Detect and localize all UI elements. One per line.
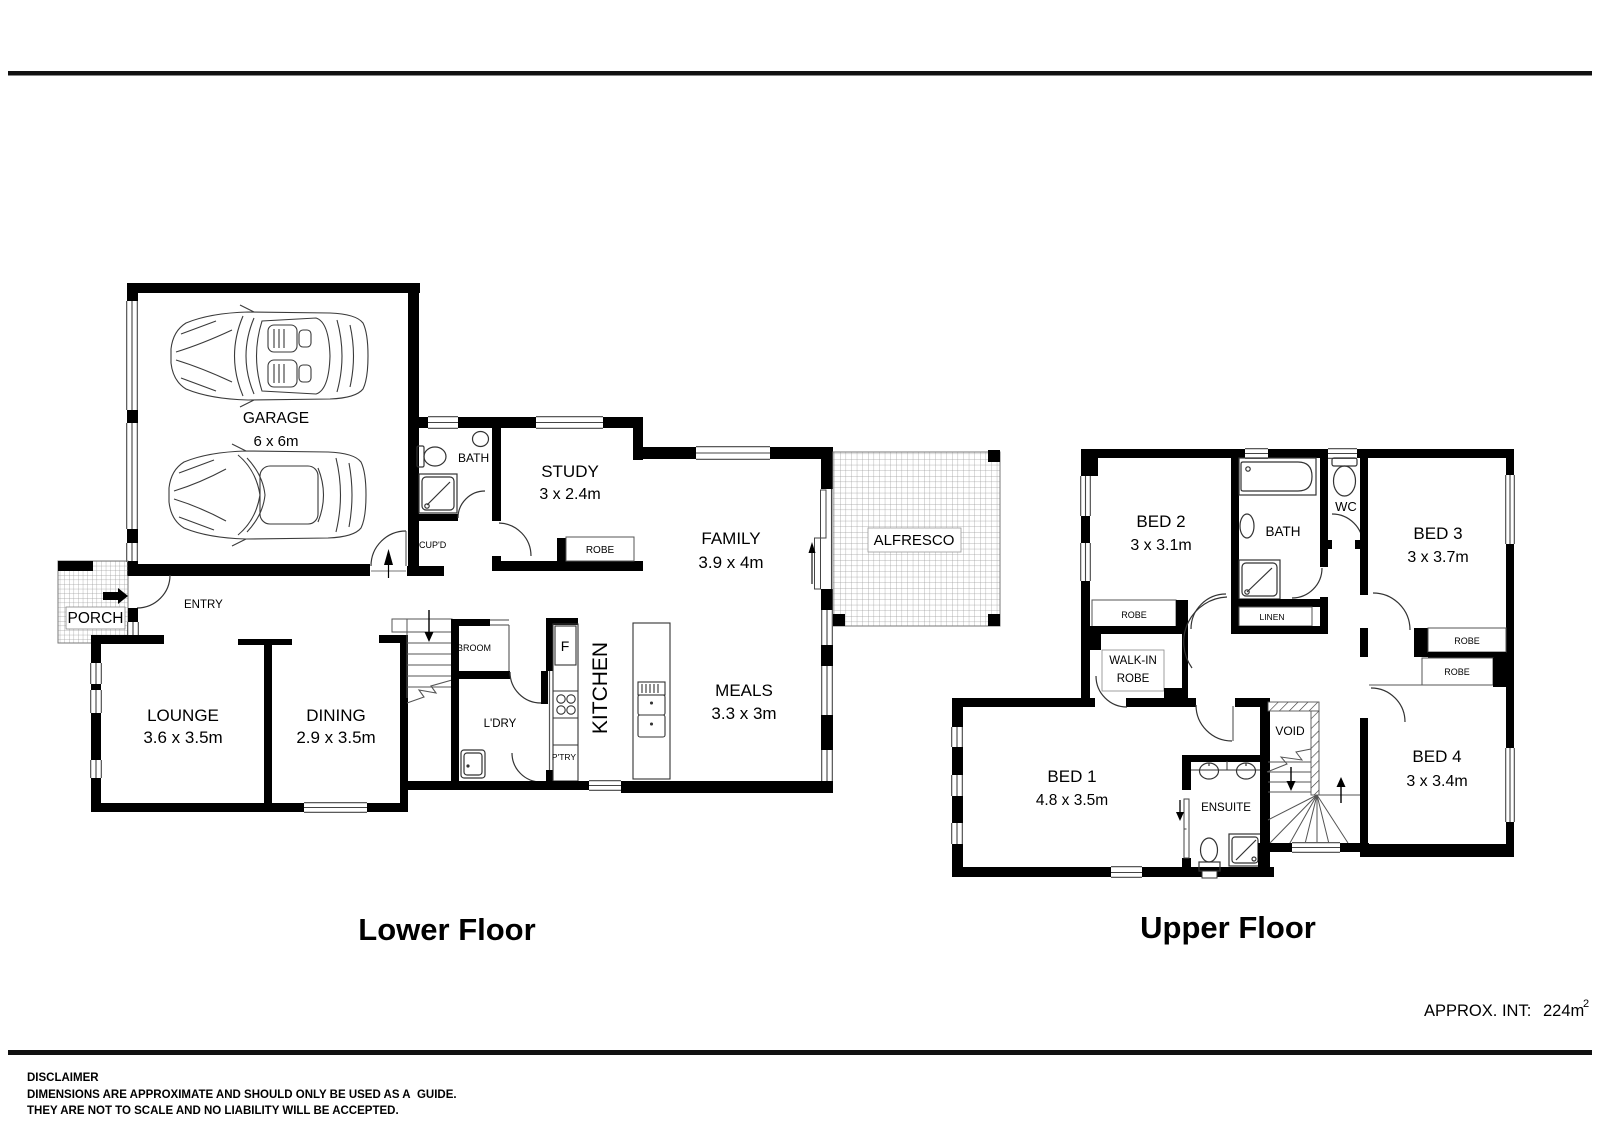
svg-text:LOUNGE: LOUNGE xyxy=(147,706,219,725)
svg-text:KITCHEN: KITCHEN xyxy=(589,642,612,734)
svg-text:3.6 x 3.5m: 3.6 x 3.5m xyxy=(143,728,222,747)
svg-text:2: 2 xyxy=(1583,998,1589,1010)
svg-text:THEY ARE NOT TO SCALE AND NO L: THEY ARE NOT TO SCALE AND NO LIABILITY W… xyxy=(27,1105,399,1117)
svg-text:3 x 2.4m: 3 x 2.4m xyxy=(539,486,600,503)
svg-text:ENTRY: ENTRY xyxy=(184,599,223,611)
svg-text:6 x 6m: 6 x 6m xyxy=(253,433,298,450)
svg-text:3 x 3.1m: 3 x 3.1m xyxy=(1130,537,1191,554)
svg-text:FAMILY: FAMILY xyxy=(701,529,760,548)
svg-text:3 x 3.7m: 3 x 3.7m xyxy=(1407,549,1468,566)
svg-text:DISCLAIMER: DISCLAIMER xyxy=(27,1072,99,1084)
svg-text:L'DRY: L'DRY xyxy=(484,718,517,730)
svg-text:ENSUITE: ENSUITE xyxy=(1201,802,1251,814)
svg-text:DINING: DINING xyxy=(306,706,366,725)
svg-text:BATH: BATH xyxy=(458,451,489,465)
svg-text:MEALS: MEALS xyxy=(715,681,773,700)
svg-text:WC: WC xyxy=(1335,499,1357,514)
svg-text:CUP'D: CUP'D xyxy=(419,540,447,550)
svg-text:BROOM: BROOM xyxy=(457,643,491,653)
svg-text:BED 2: BED 2 xyxy=(1136,512,1185,531)
svg-text:LINEN: LINEN xyxy=(1259,612,1284,622)
svg-text:BED 1: BED 1 xyxy=(1047,767,1096,786)
svg-text:Upper Floor: Upper Floor xyxy=(1140,910,1316,945)
svg-text:ROBE: ROBE xyxy=(1117,673,1150,685)
svg-text:GARAGE: GARAGE xyxy=(243,410,309,427)
svg-text:2.9 x 3.5m: 2.9 x 3.5m xyxy=(296,728,375,747)
svg-text:3 x 3.4m: 3 x 3.4m xyxy=(1406,773,1467,790)
svg-text:ROBE: ROBE xyxy=(1121,610,1147,620)
svg-text:VOID: VOID xyxy=(1275,724,1305,738)
svg-text:ROBE: ROBE xyxy=(586,545,615,556)
svg-text:P'TRY: P'TRY xyxy=(552,752,576,762)
svg-text:BATH: BATH xyxy=(1265,524,1300,539)
svg-text:STUDY: STUDY xyxy=(541,462,599,481)
svg-text:ALFRESCO: ALFRESCO xyxy=(874,532,955,549)
svg-text:ROBE: ROBE xyxy=(1454,636,1480,646)
svg-text:F: F xyxy=(561,638,570,654)
svg-text:3.9 x 4m: 3.9 x 4m xyxy=(698,553,763,572)
svg-text:WALK-IN: WALK-IN xyxy=(1109,655,1157,667)
svg-text:224m: 224m xyxy=(1543,1002,1584,1020)
svg-text:DIMENSIONS ARE APPROXIMATE AND: DIMENSIONS ARE APPROXIMATE AND SHOULD ON… xyxy=(27,1089,457,1101)
svg-text:3.3 x 3m: 3.3 x 3m xyxy=(711,704,776,723)
svg-text:BED 4: BED 4 xyxy=(1412,747,1461,766)
svg-text:ROBE: ROBE xyxy=(1444,667,1470,677)
svg-text:APPROX. INT:: APPROX. INT: xyxy=(1424,1002,1531,1020)
svg-text:4.8 x 3.5m: 4.8 x 3.5m xyxy=(1036,792,1108,809)
svg-text:BED 3: BED 3 xyxy=(1413,524,1462,543)
svg-text:PORCH: PORCH xyxy=(68,610,124,627)
svg-text:Lower Floor: Lower Floor xyxy=(358,912,535,947)
